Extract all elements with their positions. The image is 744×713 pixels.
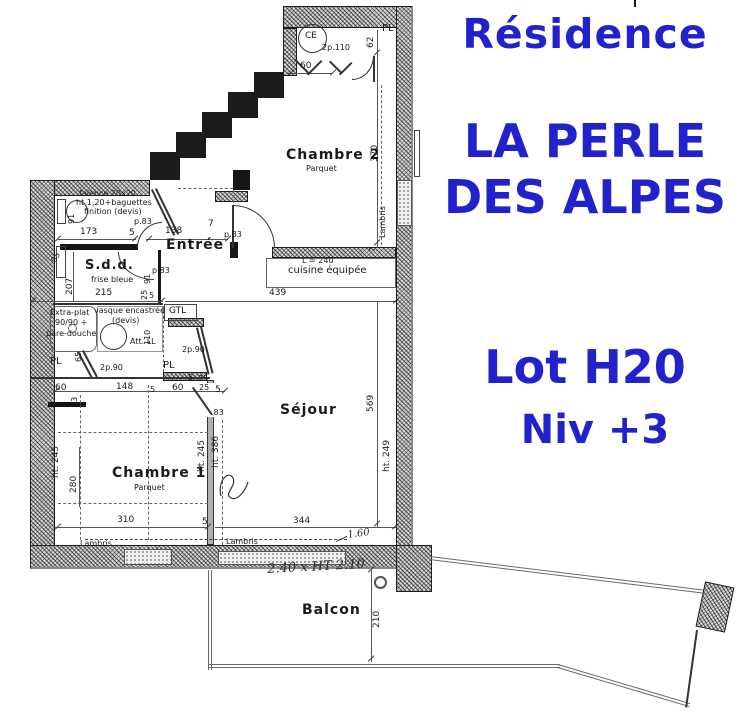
dashed-line [80, 395, 81, 540]
dashed-line [178, 188, 233, 189]
door-leaf-sejour [232, 205, 234, 248]
room-label-balcon: Balcon [302, 603, 361, 617]
title-lot: Lot H20 [430, 344, 740, 390]
dim-25-ch1: 25 [199, 384, 209, 392]
radiator-chambre2 [215, 191, 248, 202]
dim-line [58, 239, 136, 240]
wall-right [396, 6, 413, 568]
floor-label-chambre-2: Parquet [306, 165, 337, 173]
door-label-2p110: 2p.110 [322, 44, 350, 52]
dim-60-ch1b: 60 [172, 384, 183, 393]
dashed-line [58, 432, 208, 433]
dim-5-entree: 5 [149, 292, 154, 300]
dim-line [377, 302, 378, 528]
dim-5-ch1b: 5 [215, 386, 221, 395]
stair-wall-step [150, 152, 180, 180]
dim-cuisine-240: L = 240 [302, 257, 334, 265]
dim-line [165, 301, 396, 302]
door-label-2p90-hall: 2p.90 [182, 346, 205, 354]
dim-tick [330, 69, 336, 75]
title-name-line2: DES ALPES [430, 174, 740, 220]
balcony-post [374, 576, 387, 589]
room-label-entree: Entrée [166, 238, 224, 252]
dim-91-entree: 91 [144, 274, 152, 284]
bifold-door-2p110 [339, 62, 352, 75]
closet-divider-pl-ch2 [373, 56, 375, 82]
closet-label-pl-hall: PL [163, 361, 175, 371]
floor-label-chambre-1: Parquet [134, 484, 165, 492]
dim-ht-245-left: ht. 245 [52, 446, 61, 478]
wall-sejour-north [272, 247, 396, 258]
door-label-p83-entree: p.83 [152, 267, 170, 275]
dim-370: 370 [371, 145, 380, 162]
shutter-chambre2 [414, 130, 420, 177]
annotation-faience: faïence 20x20 [79, 190, 136, 198]
dim-line [30, 301, 163, 302]
dim-line [79, 447, 80, 507]
stair-wall-step [254, 72, 284, 98]
dim-7-entree: 7 [208, 220, 214, 229]
dim-65: 65 [75, 352, 83, 362]
toilet-tank [57, 199, 66, 224]
door-arc-sejour [233, 205, 275, 248]
dim-310: 310 [117, 516, 134, 525]
dim-60-ch2: 60 [300, 62, 311, 71]
closet-label-pl-ch2: PL [382, 24, 394, 34]
room-label-chambre-2: Chambre 2 [286, 148, 380, 162]
dim-207: 207 [66, 278, 75, 295]
dim-439: 439 [269, 289, 286, 298]
title-name-line1: LA PERLE [430, 118, 740, 164]
annotation-vasque: vasque encastrée [94, 307, 165, 315]
handwritten-bay-dim: 2.40 x HT 2.10 [267, 558, 365, 576]
sink-basin [100, 323, 127, 350]
door-label-2p90-left: 2p.90 [100, 364, 123, 372]
wall-sdd-north [60, 244, 138, 250]
dim-148: 148 [116, 383, 133, 392]
dim-25-entree: 25 [141, 290, 149, 300]
title-residence: Résidence [430, 14, 740, 55]
balcony-rail-bottom [208, 664, 560, 668]
dim-173: 173 [80, 228, 97, 237]
annotation-lambris-right: Lambris [379, 206, 387, 238]
balcony-rail-top-slant [430, 556, 710, 594]
dim-line [55, 527, 208, 528]
closet-label-pl-left: PL [50, 357, 62, 367]
dim-5-hall: 5 [188, 374, 193, 382]
balcony-rail-left [208, 570, 212, 670]
stair-wall-step [228, 92, 258, 118]
dashed-line [58, 503, 208, 504]
stair-wall-step [176, 132, 206, 158]
wall-corner-bottom-right [396, 545, 432, 592]
wall-left-outer [30, 180, 55, 565]
dashed-line [148, 385, 149, 540]
floorplan-canvas: Résidence LA PERLE DES ALPES Lot H20 Niv… [0, 0, 744, 713]
annotation-frise-bleue: frise bleue [91, 276, 133, 284]
annotation-vasque-devis: (devis) [112, 317, 139, 325]
dim-ht-245-right: ht. 245 [198, 440, 207, 472]
dim-5-bottom: 5 [202, 518, 208, 527]
lambris-dashed-line [85, 539, 347, 540]
title-level: Niv +3 [450, 410, 740, 450]
dim-tick [222, 387, 228, 393]
dim-569: 569 [367, 395, 376, 412]
top-edge-mark [634, 0, 636, 7]
door-label-83-ch1: .83 [211, 409, 224, 417]
dim-7-cuisine: 7 [369, 247, 377, 252]
dim-344: 344 [293, 517, 310, 526]
annotation-lambris-ch1: Lambris [80, 540, 112, 548]
window-chambre2 [397, 180, 412, 226]
dim-5-ch1a: 5 [150, 386, 155, 394]
handwritten-160: 1.60 [347, 528, 370, 541]
scribble-mark [215, 468, 251, 502]
annotation-extra-plat-2: 90/90 + [55, 319, 87, 327]
wall-left-chambre2 [283, 28, 297, 76]
stair-wall-step [202, 112, 232, 138]
dim-62: 62 [367, 37, 376, 48]
window-chambre1 [124, 549, 172, 565]
balcony-pier-diagonal [685, 630, 698, 708]
door-label-p83-sejour: p.83 [224, 231, 242, 239]
annotation-pare-douche: pare-douche [46, 330, 96, 338]
dim-138: 138 [165, 227, 182, 236]
annotation-extra-plat: Extra-plat [50, 309, 89, 317]
dim-280: 280 [70, 476, 79, 493]
room-label-chambre-1: Chambre 1 [112, 466, 206, 480]
dim-25-hall: 25 [198, 375, 208, 383]
dim-93: 93 [71, 397, 79, 407]
dim-ht-249: ht. 249 [383, 440, 392, 472]
annotation-cuisine-equipee: cuisine équipée [288, 266, 367, 276]
room-label-sejour: Séjour [280, 403, 337, 417]
dim-210-balcon: 210 [373, 611, 382, 628]
wall-sdd-east [158, 250, 161, 304]
dim-91-wc: 91 [68, 214, 76, 224]
wall-stub-entree [233, 170, 250, 190]
door-label-p83-sdd: p.83 [134, 218, 152, 226]
door-arc-pl-ch2 [352, 56, 374, 80]
annotation-finition: finition (devis) [84, 208, 142, 216]
dim-ht-386: ht. 386 [212, 436, 221, 468]
annotation-gtl: GTL [169, 307, 186, 316]
dim-60-ch1a: 60 [55, 384, 66, 393]
annotation-lambris-sejour: Lambris [226, 538, 258, 546]
wall-chambre1-north [30, 377, 210, 379]
dim-110: 110 [144, 330, 152, 345]
annotation-baguettes: ht 1,20+baguettes [76, 199, 152, 207]
fixture-label-ce: CE [305, 32, 317, 41]
room-label-sdd: S.d.d. [85, 259, 134, 272]
balcony-rail-bottom-slant [557, 664, 690, 707]
dim-5-sdd: 5 [129, 229, 135, 238]
wall-sdd-south [53, 303, 163, 305]
dim-215: 215 [95, 289, 112, 298]
